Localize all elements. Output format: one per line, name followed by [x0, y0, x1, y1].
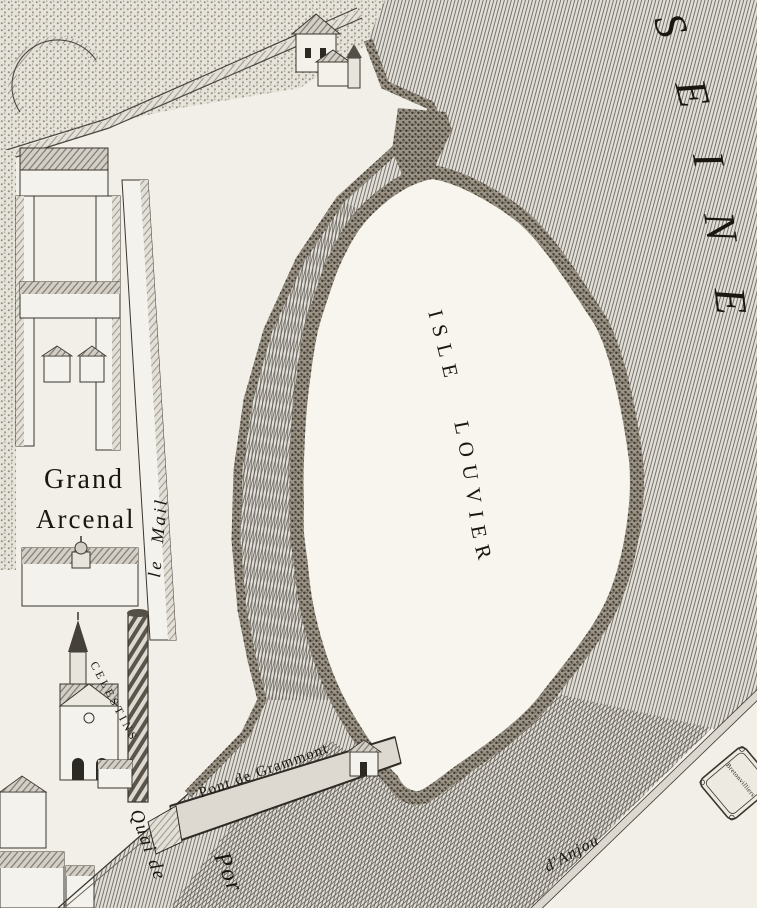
- garden-strip: [0, 150, 16, 570]
- engraved-map-image: Bretonvilliers SEINE ISLE LOUVIER Grand …: [0, 0, 757, 908]
- striped-tower-cap: [127, 609, 149, 617]
- arsenal-label-line1: Grand: [44, 464, 124, 495]
- arsenal-label-line2: Arcenal: [36, 504, 135, 534]
- map-canvas: Bretonvilliers SEINE ISLE LOUVIER Grand …: [0, 0, 757, 908]
